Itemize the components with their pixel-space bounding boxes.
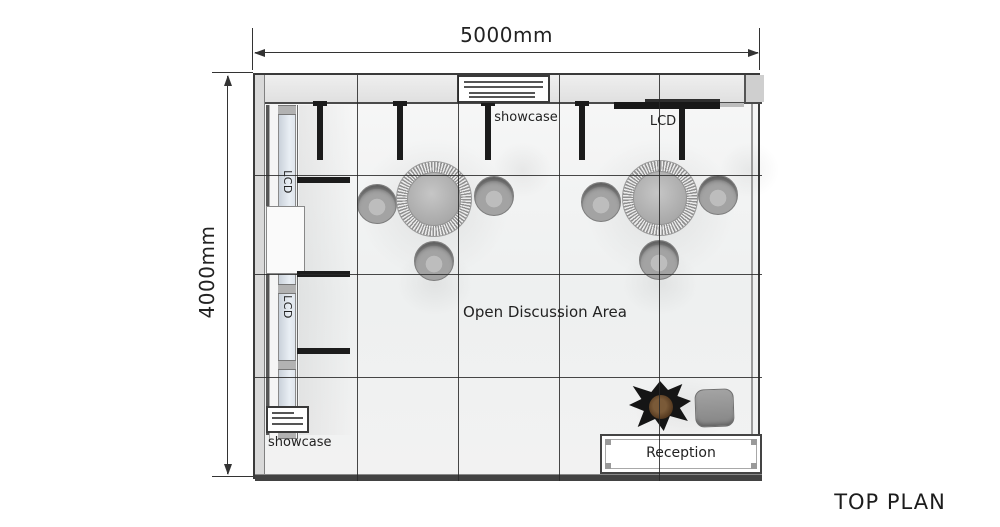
showcase-top-shelf <box>464 81 543 83</box>
width-dimension-line <box>255 52 758 53</box>
lcd-screen-top <box>614 102 720 109</box>
showcase-bottom-label: showcase <box>260 435 350 450</box>
grid-line-vertical <box>357 75 358 481</box>
left-wall <box>255 75 265 481</box>
showcase-top-shelf <box>469 96 535 98</box>
left-showcase-divider <box>278 105 296 115</box>
showcase-top <box>457 75 550 103</box>
bottom-wall <box>255 474 762 481</box>
reception-label: Reception <box>602 445 760 461</box>
showcase-bottom-shelf <box>272 417 303 419</box>
grid-line-horizontal <box>255 377 762 378</box>
showcase-bottom-shelf <box>272 412 294 414</box>
wall-post <box>317 104 323 160</box>
top-wall-corner <box>744 75 764 102</box>
desk-corner <box>605 463 611 469</box>
plant-pot <box>649 395 673 419</box>
wall-post <box>679 104 685 160</box>
top-plan-title: TOP PLAN <box>790 490 990 514</box>
width-dimension-label: 5000mm <box>253 23 760 47</box>
height-dimension-tick-bottom <box>212 476 253 477</box>
left-mid-panel <box>266 206 305 274</box>
round-table-1-top <box>407 172 461 226</box>
grid-line-vertical <box>559 75 560 481</box>
grid-line-vertical <box>659 75 660 481</box>
chair <box>357 184 397 224</box>
spotlight-bar <box>297 348 350 354</box>
grid-line-vertical <box>458 75 459 481</box>
round-table-2 <box>622 160 698 236</box>
height-dimension-label: 4000mm <box>195 212 219 332</box>
lcd-left-label-2: LCD <box>280 287 294 327</box>
chair <box>414 241 454 281</box>
showcase-top-shelf <box>469 92 535 94</box>
round-table-2-top <box>633 171 687 225</box>
floor-plan-canvas: 5000mm 4000mm <box>0 0 1000 527</box>
width-dimension-arrow-left <box>254 49 265 57</box>
chair <box>474 176 514 216</box>
lcd-shelf <box>720 103 744 107</box>
reception-desk: Reception <box>600 434 762 474</box>
chair <box>581 182 621 222</box>
height-dimension-line <box>227 76 228 474</box>
height-dimension-tick-top <box>212 72 253 73</box>
width-dimension-arrow-right <box>748 49 759 57</box>
lcd-left-label-1: LCD <box>280 162 294 202</box>
right-wall <box>751 104 753 474</box>
height-dimension-arrow-top <box>224 75 232 86</box>
spotlight-bar <box>297 177 350 183</box>
open-discussion-area-label: Open Discussion Area <box>395 303 695 321</box>
chair <box>698 175 738 215</box>
grid-line-horizontal <box>255 175 762 176</box>
showcase-top-label: showcase <box>466 110 586 125</box>
showcase-bottom <box>266 406 309 433</box>
reception-chair <box>694 388 734 427</box>
height-dimension-arrow-bottom <box>224 464 232 475</box>
wall-post <box>397 104 403 160</box>
showcase-bottom-shelf <box>272 423 303 425</box>
showcase-top-shelf <box>464 86 543 88</box>
left-showcase-divider <box>278 360 296 370</box>
grid-line-horizontal <box>255 274 762 275</box>
left-wall-shadow <box>299 105 354 435</box>
lcd-top-label: LCD <box>633 114 693 129</box>
round-table-1 <box>396 161 472 237</box>
booth-room: showcase LCD LCD LCD showcase <box>253 73 760 479</box>
desk-corner <box>751 463 757 469</box>
